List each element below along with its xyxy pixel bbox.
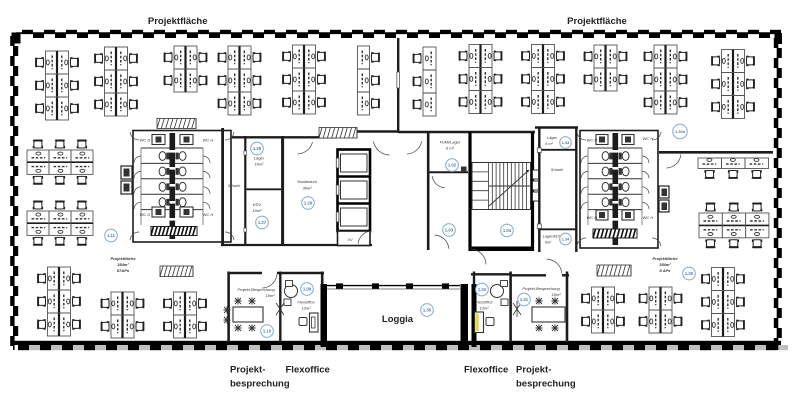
svg-text:1.27: 1.27 xyxy=(258,220,267,225)
svg-text:10m²: 10m² xyxy=(254,162,264,167)
svg-text:Projekt-Besprechung: Projekt-Besprechung xyxy=(237,287,275,292)
svg-text:1.31: 1.31 xyxy=(520,297,529,302)
svg-text:6 m²: 6 m² xyxy=(545,142,553,146)
svg-text:8 m²: 8 m² xyxy=(446,146,455,151)
svg-text:Loggia: Loggia xyxy=(382,314,414,325)
svg-text:1.30: 1.30 xyxy=(685,271,694,276)
svg-text:Projektfläche: Projektfläche xyxy=(148,16,208,27)
svg-text:WC D: WC D xyxy=(140,212,151,217)
svg-text:354m²: 354m² xyxy=(659,262,671,267)
svg-text:1.34: 1.34 xyxy=(562,237,570,242)
svg-text:1.32: 1.32 xyxy=(478,287,487,292)
svg-text:Flexoffice: Flexoffice xyxy=(297,300,315,305)
svg-text:13m²: 13m² xyxy=(301,306,311,311)
svg-text:Projekt-: Projekt- xyxy=(230,365,265,376)
svg-text:Projektfläche: Projektfläche xyxy=(652,256,678,261)
svg-text:Projekt-: Projekt- xyxy=(516,365,551,376)
svg-text:WC D: WC D xyxy=(587,138,598,143)
svg-text:19m²: 19m² xyxy=(551,292,561,297)
svg-text:1.33: 1.33 xyxy=(562,140,570,145)
svg-text:1.04: 1.04 xyxy=(503,228,512,233)
svg-text:Sozialraum: Sozialraum xyxy=(297,179,318,184)
svg-text:WC H: WC H xyxy=(203,212,214,217)
svg-text:Läger: Läger xyxy=(547,136,557,140)
svg-text:1.09: 1.09 xyxy=(303,287,312,292)
svg-text:13m²: 13m² xyxy=(479,306,489,311)
svg-text:Schacht: Schacht xyxy=(551,168,564,172)
svg-text:6m²: 6m² xyxy=(545,241,552,245)
svg-text:WC H: WC H xyxy=(203,138,214,143)
svg-text:1.02: 1.02 xyxy=(448,163,457,168)
svg-text:besprechung: besprechung xyxy=(516,379,576,390)
svg-text:WC H: WC H xyxy=(643,136,654,141)
svg-text:WC D: WC D xyxy=(140,138,151,143)
svg-text:1.11: 1.11 xyxy=(107,233,116,238)
svg-text:1.03: 1.03 xyxy=(445,228,454,233)
svg-text:87APs: 87APs xyxy=(117,268,130,273)
svg-text:Läger: Läger xyxy=(254,156,265,161)
svg-text:Flexoffice: Flexoffice xyxy=(464,365,508,376)
svg-text:1.10: 1.10 xyxy=(263,329,272,334)
svg-text:Flexoffice: Flexoffice xyxy=(475,300,493,305)
svg-text:Projekt-Besprechung: Projekt-Besprechung xyxy=(522,286,560,291)
svg-text:1.28: 1.28 xyxy=(253,146,262,151)
svg-text:354m²: 354m² xyxy=(117,262,129,267)
svg-text:1.29: 1.29 xyxy=(304,201,313,206)
svg-text:8 APs: 8 APs xyxy=(660,268,672,273)
svg-text:Flexoffice: Flexoffice xyxy=(286,365,330,376)
svg-text:WC D: WC D xyxy=(587,215,598,220)
svg-text:19m²: 19m² xyxy=(265,293,275,298)
svg-text:WC H: WC H xyxy=(643,215,654,220)
svg-text:Lager/EDV: Lager/EDV xyxy=(543,235,562,239)
svg-text:Schacht: Schacht xyxy=(228,184,241,188)
svg-text:PuMi/Lager: PuMi/Lager xyxy=(440,140,461,145)
svg-text:1.30a: 1.30a xyxy=(675,129,686,134)
svg-text:EDV: EDV xyxy=(253,202,262,207)
svg-text:UV: UV xyxy=(348,238,354,242)
svg-text:besprechung: besprechung xyxy=(230,379,290,390)
svg-text:10m²: 10m² xyxy=(252,208,262,213)
svg-text:1.35: 1.35 xyxy=(423,308,432,313)
svg-text:36m²: 36m² xyxy=(302,186,312,191)
svg-text:Projektfläche: Projektfläche xyxy=(567,16,627,27)
svg-text:Projektfläche: Projektfläche xyxy=(110,256,136,261)
